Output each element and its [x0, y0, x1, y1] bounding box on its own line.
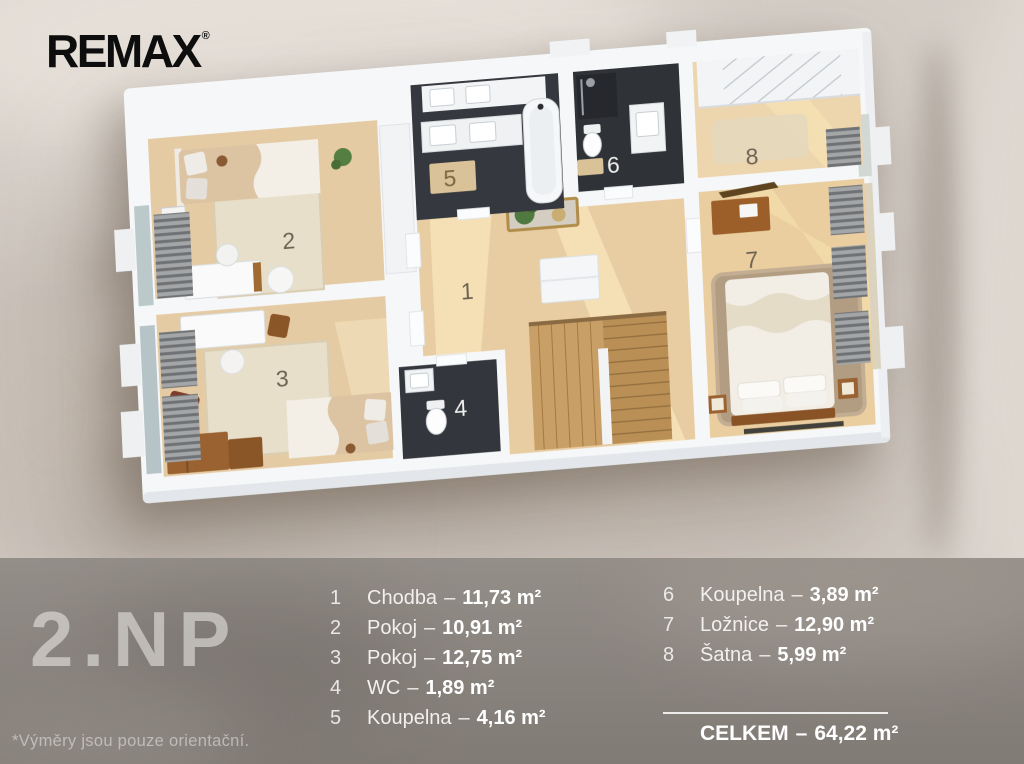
floorplan-3d: 1 2 3 4 5 6 7 8	[123, 27, 890, 503]
legend-item-number: 7	[663, 614, 700, 637]
legend-item-area: 1,89 m²	[425, 677, 494, 700]
sink-vanity	[630, 103, 666, 154]
toilet	[582, 124, 601, 157]
legend-item-number: 2	[330, 617, 367, 640]
legend-item-name: Šatna	[700, 644, 752, 667]
room-label-3: 3	[275, 365, 289, 392]
blinds	[831, 245, 867, 300]
remax-logo-text: REMAX	[46, 25, 200, 77]
legend-item-number: 4	[330, 677, 367, 700]
room-koupelna-6	[573, 63, 685, 202]
legend-total: CELKEM – 64,22 m²	[700, 722, 898, 746]
total-area: 64,22 m²	[814, 722, 898, 746]
legend-item: 3 Pokoj – 12,75 m²	[330, 644, 546, 674]
floor-title: 2.NP	[30, 600, 239, 678]
legend-item-area: 5,99 m²	[777, 644, 846, 667]
blinds	[159, 330, 198, 389]
room-satna-8	[693, 49, 864, 179]
door	[457, 207, 489, 220]
page: REMAX®	[0, 0, 1024, 764]
legend-item-name: WC	[367, 677, 400, 700]
blinds	[826, 127, 862, 168]
toilet	[425, 400, 447, 436]
door	[409, 311, 425, 346]
room-label-1: 1	[460, 278, 474, 305]
legend-item: 2 Pokoj – 10,91 m²	[330, 614, 546, 644]
room-loznice-7	[698, 174, 875, 437]
legend-item-separator: –	[792, 584, 803, 607]
legend-item: 8 Šatna – 5,99 m²	[663, 641, 879, 671]
door	[436, 354, 466, 366]
room-label-6: 6	[606, 151, 620, 178]
remax-logo: REMAX®	[46, 28, 210, 74]
chair-wood	[267, 313, 291, 338]
legend-column-1: 1 Chodba – 11,73 m² 2 Pokoj – 10,91 m² 3…	[330, 584, 546, 733]
legend-item-area: 3,89 m²	[810, 584, 879, 607]
bathtub	[522, 97, 563, 204]
legend-item-area: 12,90 m²	[794, 614, 874, 637]
total-separator: –	[796, 722, 808, 746]
nightstand	[708, 394, 727, 413]
legend-item-separator: –	[444, 587, 455, 610]
legend-item: 7 Ložnice – 12,90 m²	[663, 610, 879, 640]
bed-double	[725, 272, 836, 426]
dresser-white	[540, 255, 600, 304]
room-label-4: 4	[454, 395, 468, 422]
legend-item-separator: –	[759, 644, 770, 667]
blinds	[153, 212, 193, 299]
sink-vanity	[405, 368, 434, 392]
legend-item-separator: –	[407, 677, 418, 700]
legend-item: 6 Koupelna – 3,89 m²	[663, 580, 879, 610]
legend-item-number: 3	[330, 647, 367, 670]
blinds	[162, 394, 201, 463]
legend-item: 4 WC – 1,89 m²	[330, 673, 546, 703]
legend-item-area: 10,91 m²	[442, 617, 522, 640]
legend-item-area: 11,73 m²	[462, 587, 541, 610]
room-label-5: 5	[443, 165, 457, 192]
room-label-2: 2	[282, 227, 296, 254]
room-label-8: 8	[745, 143, 759, 170]
bath-mat	[577, 158, 604, 176]
room-koupelna-5	[410, 73, 564, 223]
legend-column-2: 6 Koupelna – 3,89 m² 7 Ložnice – 12,90 m…	[663, 580, 879, 671]
background-blur-blob	[916, 40, 958, 560]
legend-item-number: 1	[330, 587, 367, 610]
legend-item-separator: –	[424, 617, 435, 640]
bed-single	[286, 392, 396, 459]
door	[405, 233, 421, 268]
total-label: CELKEM	[700, 722, 789, 746]
legend-item-number: 6	[663, 584, 700, 607]
legend-item-name: Pokoj	[367, 617, 417, 640]
legend-item-area: 12,75 m²	[442, 647, 522, 670]
legend-item-name: Pokoj	[367, 647, 417, 670]
legend-item-name: Chodba	[367, 587, 437, 610]
floorplan-svg: 1 2 3 4 5 6 7 8	[123, 27, 890, 503]
legend-item-area: 4,16 m²	[477, 707, 546, 730]
legend-item-separator: –	[459, 707, 470, 730]
room-wc-4	[389, 349, 510, 466]
shower	[576, 72, 618, 119]
legend-item: 1 Chodba – 11,73 m²	[330, 584, 546, 614]
room-pokoj-2	[148, 118, 417, 303]
legend-item: 5 Koupelna – 4,16 m²	[330, 703, 546, 733]
rug	[711, 113, 809, 165]
blinds	[834, 311, 870, 366]
blinds	[828, 185, 864, 236]
footnote: *Výměry jsou pouze orientační.	[12, 732, 249, 751]
door	[604, 185, 632, 199]
registered-trademark-icon: ®	[202, 30, 210, 42]
legend-item-number: 8	[663, 644, 700, 667]
staircase	[529, 311, 673, 450]
legend-item-name: Ložnice	[700, 614, 769, 637]
legend-item-name: Koupelna	[700, 584, 785, 607]
legend-item-number: 5	[330, 707, 367, 730]
legend-item-separator: –	[776, 614, 787, 637]
legend-item-separator: –	[424, 647, 435, 670]
legend-divider	[663, 712, 888, 714]
nightstand	[838, 378, 859, 400]
legend-item-name: Koupelna	[367, 707, 452, 730]
room-label-7: 7	[745, 246, 759, 273]
